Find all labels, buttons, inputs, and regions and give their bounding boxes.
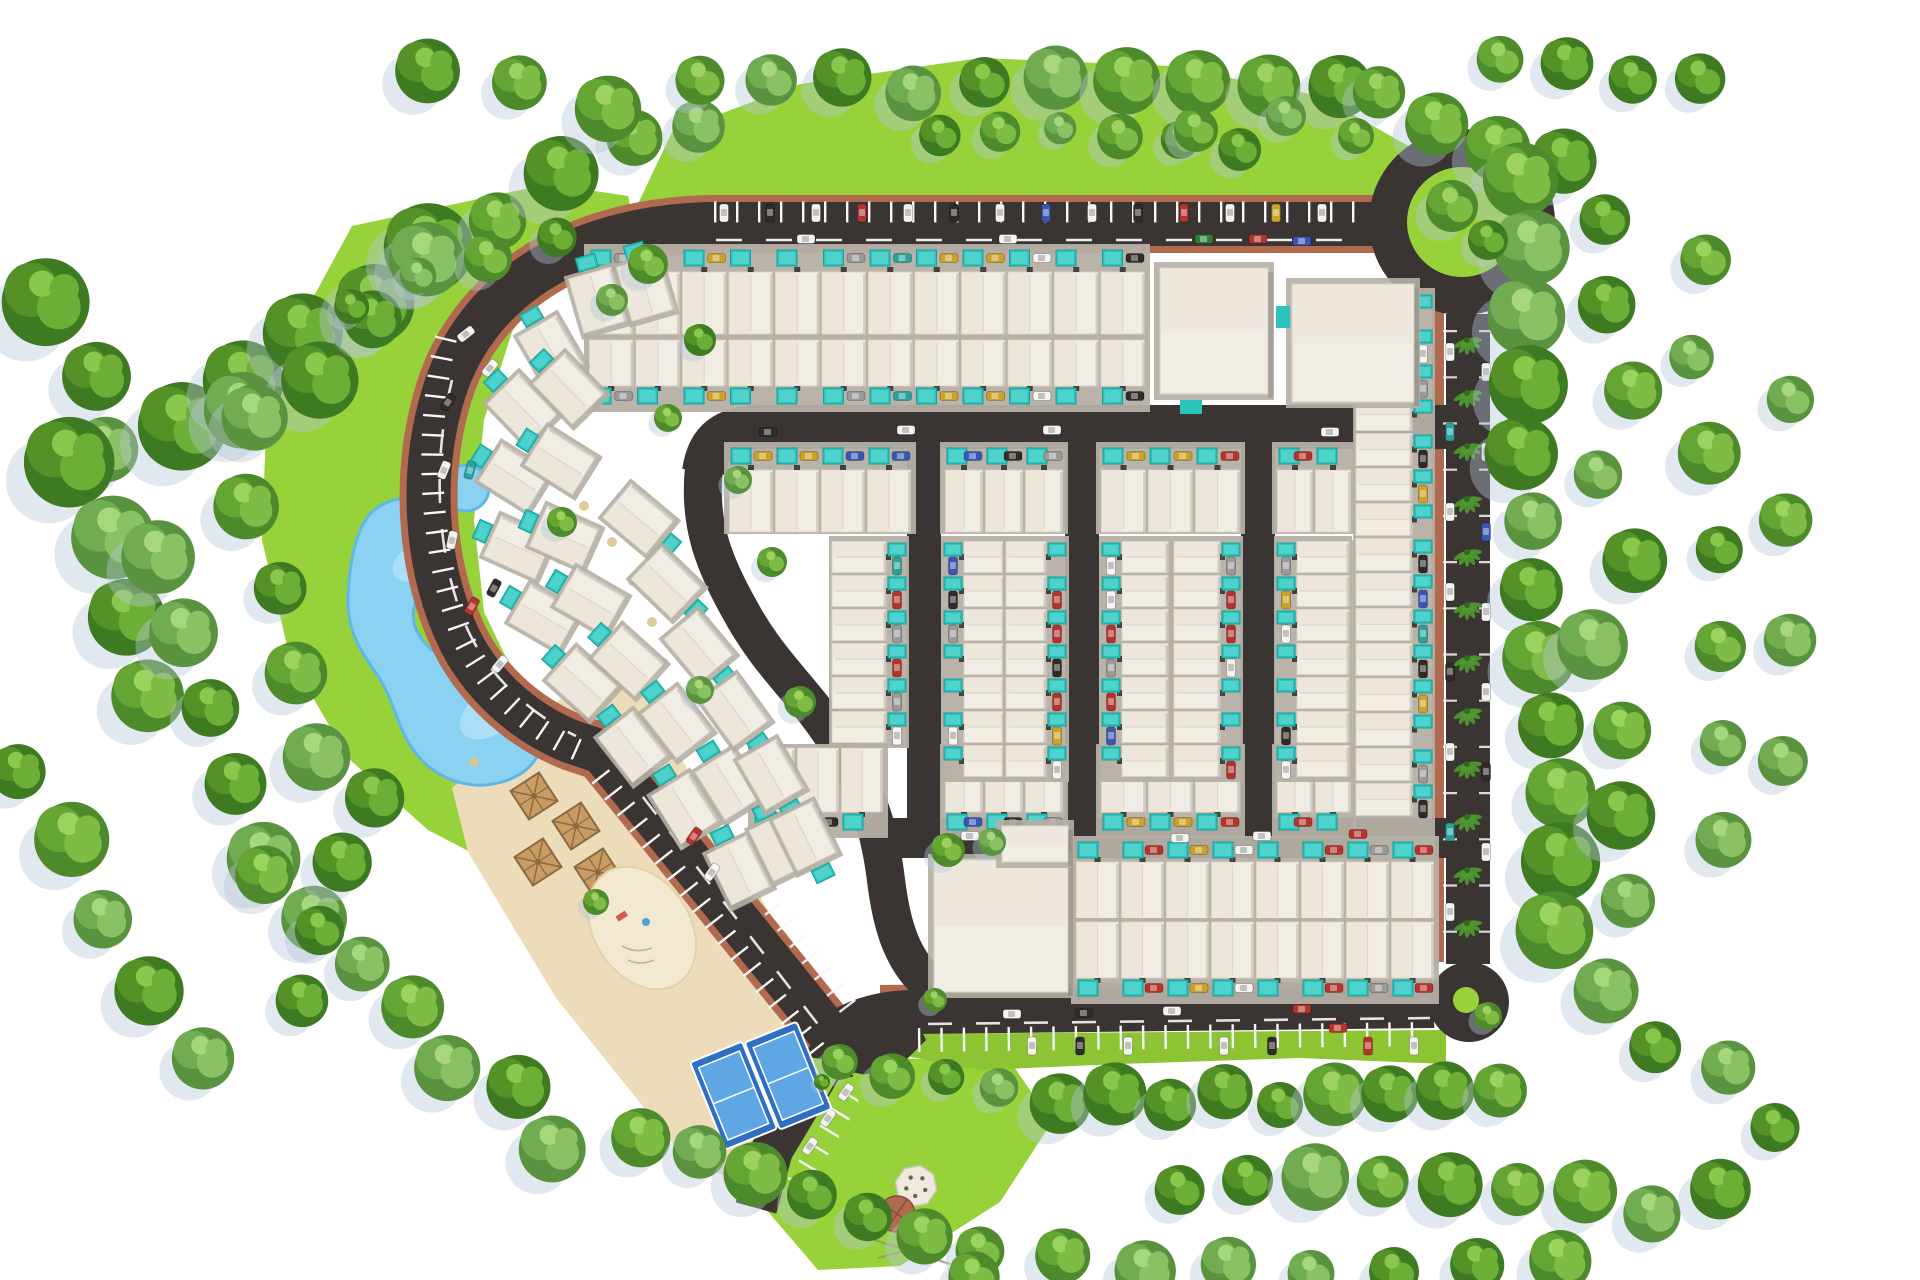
car-glass (802, 236, 809, 242)
house-shadow-edge (1161, 864, 1164, 920)
tree-canopy (415, 987, 436, 1008)
house-roof-shade (964, 644, 1004, 660)
car (1370, 846, 1388, 855)
car (1075, 1009, 1093, 1018)
tree-canopy (691, 63, 706, 78)
car-glass (1319, 209, 1325, 216)
col-s4-west (1274, 536, 1352, 782)
car (1126, 254, 1144, 263)
pool-water (1170, 844, 1186, 856)
car (893, 693, 902, 711)
house-roof-shade (964, 746, 1004, 762)
car-glass (1354, 831, 1361, 837)
pool-water (1152, 450, 1168, 462)
car (1482, 763, 1491, 781)
building-roof-shade (1292, 284, 1414, 343)
tree-canopy (606, 288, 616, 298)
tree-canopy (942, 838, 952, 848)
corner-pool-1 (1276, 306, 1290, 328)
car (904, 204, 913, 222)
car (999, 235, 1017, 244)
tree-canopy (323, 355, 349, 381)
car-glass (1375, 985, 1382, 991)
tree-canopy (640, 250, 652, 262)
building-roof-shade (1160, 268, 1268, 331)
house-shadow-edge (1116, 864, 1119, 920)
car (858, 204, 867, 222)
pool-water (733, 390, 749, 402)
house-roof-shade (869, 272, 891, 334)
tree-canopy (1624, 62, 1638, 76)
car-glass (764, 429, 771, 435)
tree-canopy (1524, 430, 1549, 455)
tree-canopy (411, 262, 422, 273)
car-glass (997, 209, 1003, 216)
palm-crown (1464, 496, 1470, 502)
car (893, 591, 902, 609)
house-shadow-edge (1143, 472, 1146, 532)
car (1227, 591, 1236, 609)
pool-water (1080, 982, 1096, 994)
house-roof-shade (1006, 678, 1046, 694)
palm-crown (1464, 708, 1470, 714)
pool-water (890, 681, 904, 690)
building-roof-shade (1002, 826, 1068, 844)
house-roof-shade (1055, 272, 1077, 334)
pool-water (779, 252, 795, 264)
tree-canopy (1714, 726, 1728, 740)
tree-canopy (1373, 1163, 1389, 1179)
car (708, 254, 726, 263)
car (1446, 743, 1455, 761)
house-shadow-edge (1049, 342, 1052, 386)
house-roof-shade (1356, 644, 1412, 660)
pool-water (1224, 749, 1238, 758)
tree-canopy (1442, 187, 1458, 203)
pool-water (1319, 450, 1335, 462)
tree-canopy (1609, 286, 1629, 306)
car (1419, 450, 1428, 468)
tree-canopy (1453, 1164, 1475, 1186)
trees-right-3 (1660, 235, 1751, 878)
car (1227, 659, 1236, 677)
community-master-plan (0, 0, 1920, 1280)
car-glass (1054, 766, 1060, 773)
tree-canopy (1730, 1050, 1748, 1068)
tree-canopy (1654, 1196, 1673, 1215)
tree-canopy (1534, 569, 1555, 590)
house-shadow-edge (1431, 924, 1434, 978)
pool-water (1416, 612, 1430, 621)
tree-canopy (1502, 1073, 1520, 1091)
pool-water (1104, 647, 1118, 656)
palm-crown (1464, 655, 1470, 661)
car (615, 392, 633, 401)
house-roof-shade (986, 470, 1005, 532)
car (1235, 984, 1253, 993)
house-shadow-edge (1003, 274, 1006, 334)
house-shadow-edge (1410, 786, 1413, 816)
car (1325, 984, 1343, 993)
car (846, 452, 864, 461)
house-shadow-edge (1251, 864, 1254, 920)
bush (607, 537, 617, 547)
pool-water (1105, 816, 1121, 828)
tree-canopy (1588, 1171, 1610, 1193)
house-shadow-edge (956, 274, 959, 334)
doorstep (961, 465, 967, 470)
car-glass (1254, 236, 1261, 242)
corner-building-1 (1154, 262, 1274, 400)
house-roof-shade (1297, 678, 1349, 694)
house-roof-shade (832, 712, 886, 728)
house-shadow-edge (1347, 714, 1350, 743)
car (1053, 659, 1062, 677)
pool-water (686, 252, 702, 264)
pool-water (1416, 577, 1430, 586)
car-glass (1195, 847, 1202, 853)
car-glass (713, 255, 720, 261)
car-glass (1132, 453, 1139, 459)
car-glass (1420, 560, 1426, 567)
tree-canopy (701, 110, 719, 128)
palm-crown (1464, 443, 1470, 449)
tree-canopy (1349, 123, 1360, 134)
house-roof-shade (1167, 862, 1188, 920)
house-shadow-edge (1410, 541, 1413, 571)
pool-water (890, 647, 904, 656)
tree-canopy (1531, 359, 1558, 386)
house-shadow-edge (1142, 342, 1145, 386)
pool-water (872, 390, 888, 402)
car (964, 452, 982, 461)
car-glass (1108, 562, 1114, 569)
house-shadow-edge (1431, 864, 1434, 920)
tree-canopy (282, 571, 300, 589)
car (940, 254, 958, 263)
tree-canopy (1271, 1088, 1285, 1102)
tree-canopy (556, 511, 565, 520)
tree-canopy (521, 1066, 543, 1088)
house-shadow-edge (1142, 274, 1145, 334)
car-glass (713, 393, 720, 399)
car-glass (1228, 596, 1234, 603)
pool-water (1050, 579, 1064, 588)
pool-water (1012, 390, 1028, 402)
tree-canopy (1781, 382, 1795, 396)
car-glass (1298, 1006, 1305, 1012)
car (1174, 452, 1192, 461)
house-shadow-edge (1410, 506, 1413, 536)
car (1171, 834, 1189, 843)
car-glass (1483, 768, 1489, 775)
car-glass (759, 453, 766, 459)
car (1293, 1005, 1311, 1014)
tree-canopy (1595, 201, 1610, 216)
house-roof-shade (832, 678, 886, 694)
pool-water (1350, 982, 1366, 994)
doorstep (1215, 465, 1221, 470)
car-glass (805, 453, 812, 459)
car (1053, 693, 1062, 711)
house-shadow-edge (1218, 714, 1221, 743)
tree-canopy (833, 1049, 844, 1060)
car (486, 578, 502, 598)
col-s3-west (1099, 536, 1171, 782)
tree-canopy (663, 408, 671, 416)
tree-canopy (1563, 771, 1587, 795)
pool-water (1104, 579, 1118, 588)
tree-canopy (1439, 104, 1460, 125)
trees-bottom-2 (1145, 1143, 1751, 1252)
car (1294, 818, 1312, 827)
tree-canopy (643, 1119, 663, 1139)
car-glass (1420, 805, 1426, 812)
car-glass (1008, 1011, 1015, 1017)
pool-water (1260, 982, 1276, 994)
house-shadow-edge (880, 750, 883, 812)
house-shadow-edge (884, 544, 887, 573)
doorstep (1168, 465, 1174, 470)
house-shadow-edge (1348, 472, 1351, 532)
house-shadow-edge (1218, 680, 1221, 709)
pool-water (1395, 982, 1411, 994)
tree-canopy (1520, 1173, 1538, 1191)
car (940, 392, 958, 401)
car-glass (1420, 595, 1426, 602)
car (950, 204, 959, 222)
car-glass (1195, 985, 1202, 991)
pool-water (949, 450, 965, 462)
tree-canopy (766, 551, 775, 560)
doorstep (1041, 465, 1047, 470)
house-shadow-edge (1296, 864, 1299, 920)
house-roof-shade (1026, 470, 1045, 532)
corner-building-2 (1286, 278, 1420, 408)
house-roof-shade (964, 542, 1004, 558)
pool-water (1350, 844, 1366, 856)
col-s2-west (941, 536, 1007, 782)
house-roof-shade (832, 644, 886, 660)
house-roof-shade (1257, 862, 1278, 920)
building-shadow (1068, 864, 1073, 996)
tree-canopy (932, 120, 944, 132)
pool-water (1105, 390, 1121, 402)
car-glass (1269, 1042, 1275, 1049)
car-glass (1131, 393, 1138, 399)
car-glass (1131, 255, 1138, 261)
car (754, 452, 772, 461)
house-shadow-edge (1044, 748, 1047, 777)
tree-canopy (429, 235, 454, 260)
col-s3-east (1171, 536, 1243, 782)
house-roof-shade (822, 272, 844, 334)
car-glass (992, 393, 999, 399)
trees-topright-2 (1467, 36, 1725, 113)
tree-canopy (975, 64, 990, 79)
car (1107, 625, 1116, 643)
car-glass (1150, 985, 1157, 991)
car (1415, 846, 1433, 855)
rotated-house (597, 478, 692, 569)
house-roof-shade (1302, 862, 1323, 920)
car (1282, 727, 1291, 745)
tree-canopy (1231, 1247, 1250, 1266)
house-roof-shade (964, 610, 1004, 626)
car-glass (1420, 350, 1426, 357)
house-roof-shade (842, 748, 863, 812)
tree-canopy (591, 893, 599, 901)
house-shadow-edge (1218, 544, 1221, 573)
pool-water (1416, 717, 1430, 726)
house-shadow-edge (1161, 924, 1164, 978)
house-shadow-edge (1020, 472, 1023, 532)
car-glass (905, 209, 911, 216)
car (949, 557, 958, 575)
house-shadow-edge (910, 342, 913, 386)
pool-water (1279, 681, 1293, 690)
tree-canopy (695, 680, 703, 688)
house-roof-shade (1008, 340, 1030, 386)
car-glass (1483, 848, 1489, 855)
house-roof-shade (1122, 712, 1168, 728)
pool-water (965, 390, 981, 402)
car-glass (992, 255, 999, 261)
car (1321, 428, 1339, 437)
house-shadow-edge (884, 714, 887, 743)
house-roof-shade (1212, 922, 1233, 978)
car (1318, 204, 1327, 222)
trees-bottom-3 (946, 1227, 1592, 1280)
car-glass (1228, 562, 1234, 569)
doorstep (840, 465, 846, 470)
house-roof-shade (1257, 922, 1278, 978)
house-roof-shade (915, 272, 937, 334)
tree-canopy (1710, 533, 1724, 547)
car (812, 204, 821, 222)
pool-water (845, 816, 861, 828)
car (1282, 625, 1291, 643)
tree-canopy (49, 274, 79, 304)
house-roof-shade (1174, 610, 1220, 626)
car (1107, 693, 1116, 711)
pool-water (1104, 749, 1118, 758)
pool-water (1105, 450, 1121, 462)
car (949, 727, 958, 745)
bush (579, 501, 589, 511)
pool-water (1215, 982, 1231, 994)
car (1235, 846, 1253, 855)
car-glass (894, 596, 900, 603)
car-glass (1334, 1025, 1341, 1031)
car-glass (1411, 1042, 1417, 1049)
tree-canopy (1766, 1110, 1781, 1125)
tree-canopy (73, 433, 104, 464)
pool-water (686, 390, 702, 402)
car-glass (1483, 528, 1489, 535)
tree-canopy (206, 1038, 227, 1059)
house-shadow-edge (1347, 680, 1350, 709)
house-roof-shade (1356, 714, 1412, 730)
house-roof-shade (1347, 922, 1368, 978)
house-shadow-edge (1166, 748, 1169, 777)
tree-canopy (1318, 1155, 1341, 1178)
pool-water (946, 647, 960, 656)
car-glass (1420, 847, 1427, 853)
house-shadow-edge (817, 342, 820, 386)
car (894, 392, 912, 401)
house-roof-shade (832, 610, 886, 626)
car-glass (1447, 508, 1453, 515)
house-roof-shade (1077, 922, 1098, 978)
house-roof-shade (1174, 678, 1220, 694)
house-shadow-edge (1347, 646, 1350, 675)
tree-canopy (1118, 1074, 1139, 1095)
bush (469, 757, 479, 767)
house-roof-shade (1316, 470, 1334, 532)
car-glass (1089, 209, 1095, 216)
pool-water (779, 450, 795, 462)
pool-water (919, 390, 935, 402)
tree-canopy (267, 856, 287, 876)
pool-water (1279, 579, 1293, 588)
house-shadow-edge (1347, 748, 1350, 777)
tree-canopy (1723, 1170, 1744, 1191)
car-glass (1108, 630, 1114, 637)
car (949, 625, 958, 643)
car (893, 727, 902, 745)
house-shadow-edge (863, 274, 866, 334)
tree-canopy (1691, 60, 1706, 75)
car-glass (1298, 238, 1305, 244)
doorstep (1121, 465, 1127, 470)
house-roof-shade (1167, 922, 1188, 978)
pool-water (1395, 844, 1411, 856)
house-roof-shade (1055, 340, 1077, 386)
pool-water (1104, 545, 1118, 554)
house-shadow-edge (677, 274, 680, 334)
car-glass (1420, 700, 1426, 707)
house-shadow-edge (956, 342, 959, 386)
car (1370, 984, 1388, 993)
car-glass (1009, 453, 1016, 459)
house-roof-shade (1196, 470, 1218, 532)
house-roof-shade (776, 272, 798, 334)
car-glass (945, 255, 952, 261)
car (1053, 727, 1062, 745)
car-glass (897, 453, 904, 459)
car (1282, 557, 1291, 575)
pool-water (1058, 390, 1074, 402)
car-glass (813, 209, 819, 216)
car-glass (1447, 588, 1453, 595)
house-roof-shade (1347, 862, 1368, 920)
tree-canopy (1609, 970, 1631, 992)
car (1190, 846, 1208, 855)
car-glass (894, 630, 900, 637)
doorstep (980, 267, 986, 272)
car-glass (1365, 1042, 1371, 1049)
car-glass (1108, 732, 1114, 739)
pool-water (1215, 844, 1231, 856)
tree-canopy (377, 779, 397, 799)
car-glass (902, 427, 909, 433)
pool-water (890, 715, 904, 724)
car-glass (1125, 1042, 1131, 1049)
pool-water (1050, 749, 1064, 758)
pool-water (946, 749, 960, 758)
house-roof-shade (1302, 922, 1323, 978)
